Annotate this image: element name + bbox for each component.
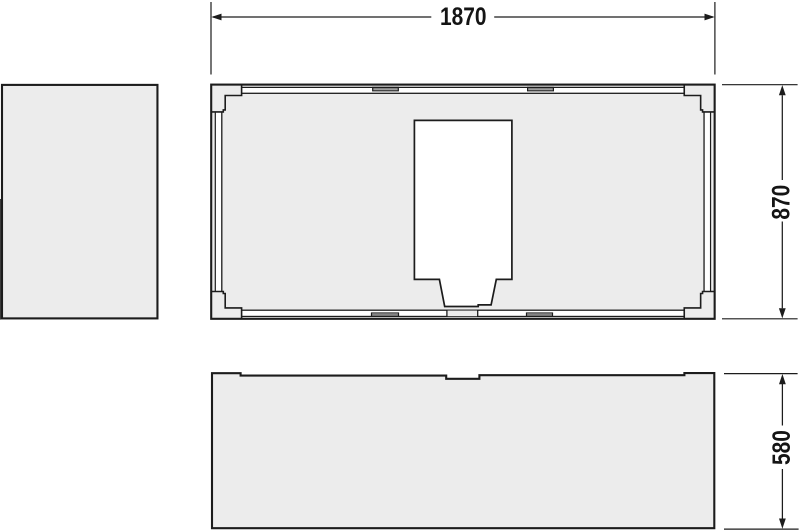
svg-text:1870: 1870 <box>440 2 486 30</box>
svg-text:580: 580 <box>767 430 795 465</box>
svg-text:870: 870 <box>767 185 795 220</box>
